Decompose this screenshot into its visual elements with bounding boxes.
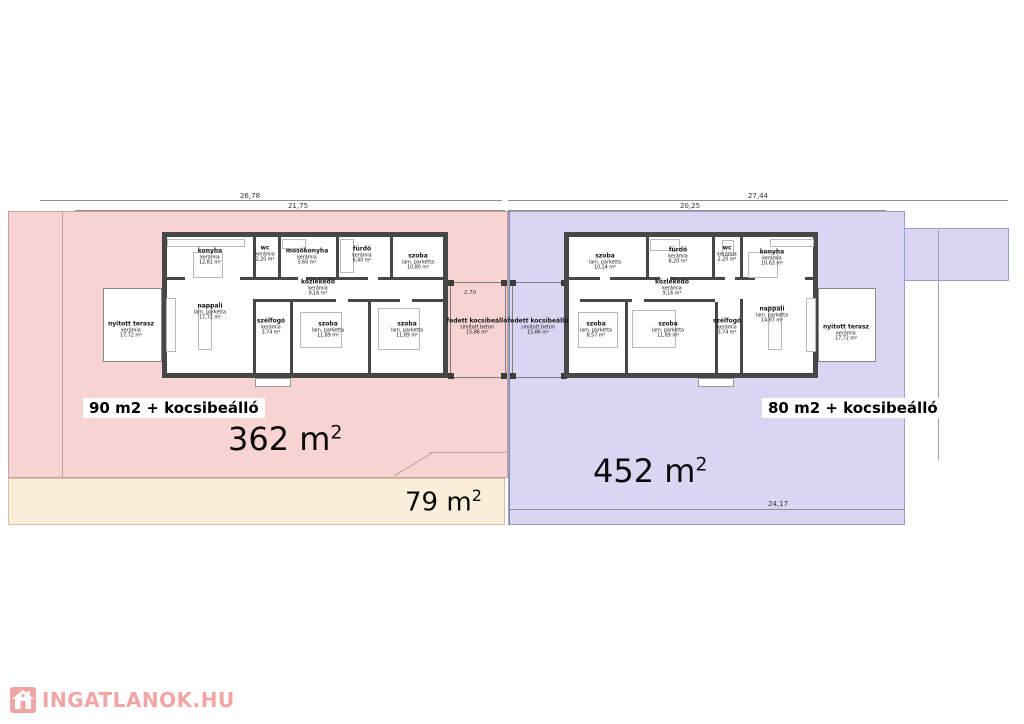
room-area: 10,24 m² [589,265,621,270]
wall [390,237,393,277]
room-area: 2,20 m² [717,257,736,262]
room-area: 17,72 m² [194,315,226,320]
wall [740,299,743,375]
room-name: fürdő [352,246,371,253]
room-area: 2,20 m² [255,257,274,262]
wall [378,277,443,280]
site-plan: 26,78 21,75 27,44 20,25 24,17 4,20 7,20 … [0,0,1024,724]
room-label-szoba: szoba lam. parketta 11,89 m² [391,321,423,338]
room-area: 11,89 m² [312,333,344,338]
room-name: szoba [580,321,612,328]
plot-boundary-line [509,211,510,525]
room-area: 17,72 m² [108,333,154,338]
room-label-kocsibeallo: fedett kocsibeálló simított beton 15,86 … [508,318,569,335]
wall [644,299,715,302]
room-name: nyitott terasz [108,321,154,328]
plot-area-left: 362 m2 [228,420,343,458]
wall [412,299,445,302]
plot-area-strip: 79 m2 [405,486,482,518]
wall [336,237,339,277]
dim-label: 27,44 [748,192,768,200]
area-exponent: 2 [330,421,342,443]
wall [165,277,185,280]
area-exponent: 2 [695,453,707,475]
room-area: 6,40 m² [352,258,371,263]
room-name: szoba [312,321,344,328]
carport-post [510,373,516,379]
room-label-furdo: fürdő kerámia 8,20 m² [668,247,687,264]
room-label-szoba: szoba lam. parketta 10,80 m² [402,253,434,270]
room-area: 5,60 m² [286,260,329,265]
wall [253,299,256,375]
area-unit: m [438,488,472,518]
plot-area-right: 452 m2 [593,452,708,490]
carport-post [501,373,507,379]
watermark-logo: INGATLANOK.HU [6,684,247,716]
area-number: 362 [228,420,289,458]
room-label-nappali: nappali lam. parketta 17,72 m² [194,303,226,320]
carport-post [501,280,507,286]
room-label-szoba: szoba lam. parketta 11,89 m² [312,321,344,338]
carport-post [448,373,454,379]
carport-post [510,280,516,286]
room-label-szelfogo: szélfogó kerámia 3,74 m² [713,318,741,335]
room-area: 3,74 m² [713,330,741,335]
area-number: 79 [405,488,438,518]
room-name: nappali [194,303,226,310]
room-label-wc: wc kerámia 2,20 m² [717,245,736,262]
entrance-step [698,378,734,387]
wall [646,237,649,277]
room-label-konyha: konyha kerámia 12,81 m² [198,248,222,265]
survey-line-chamfer [428,452,508,453]
room-label-terasz: nyitott terasz kerámia 17,72 m² [823,324,869,341]
entrance-step [255,378,291,387]
wall [740,237,743,277]
room-name: konyha [198,248,222,255]
area-number: 452 [593,452,654,490]
room-label-kocsibeallo: fedett kocsibeálló simított beton 15,86 … [447,318,508,335]
room-label-szoba: szoba lam. parketta 8,57 m² [580,321,612,338]
dim-label: 20,25 [680,202,700,210]
wall [610,277,660,280]
wall [712,237,715,277]
room-name: fedett kocsibeálló [447,318,508,325]
room-area: 10,63 m² [760,261,784,266]
room-area: 11,89 m² [391,333,423,338]
room-area: 9,16 m² [655,291,689,296]
wall [567,277,600,280]
wall [290,302,293,375]
room-name: fedett kocsibeálló [508,318,569,325]
survey-line-left [62,211,63,478]
area-exponent: 2 [472,486,482,505]
dim-line [75,210,505,211]
watermark-text: INGATLANOK.HU [42,688,235,712]
room-name: nyitott terasz [823,324,869,331]
furniture-counter [167,239,245,247]
room-name: fürdő [668,247,687,254]
house-size-label-left: 90 m2 + kocsibeálló [83,398,265,418]
wall [240,277,298,280]
room-name: szoba [402,253,434,260]
plot-right-extension [905,228,1009,281]
room-name: szoba [391,321,423,328]
room-name: nappali [756,306,788,313]
room-name: konyha [760,249,784,256]
room-name: szoba [652,321,684,328]
dim-line [40,200,502,201]
area-unit: m [654,452,695,490]
room-area: 15,86 m² [447,330,508,335]
wall [253,299,336,302]
room-label-mosokonyha: mosókonyha kerámia 5,60 m² [286,248,329,265]
wall [278,237,281,277]
room-area: 12,81 m² [198,260,222,265]
dim-label: 24,17 [768,500,788,508]
room-name: közlekedő [655,279,689,286]
room-area: 15,86 m² [508,330,569,335]
room-area: 10,80 m² [402,265,434,270]
room-area: 8,20 m² [668,259,687,264]
room-label-szoba: szoba lam. parketta 10,24 m² [589,253,621,270]
room-area: 14,87 m² [756,318,788,323]
room-label-konyha: konyha kerámia 10,63 m² [760,249,784,266]
wall [805,277,815,280]
room-label-szelfogo: szélfogó kerámia 3,74 m² [257,318,285,335]
furniture-sofa [166,298,176,352]
room-label-terasz: nyitott terasz kerámia 17,72 m² [108,321,154,338]
room-name: szoba [589,253,621,260]
room-area: 9,16 m² [301,291,335,296]
room-label-wc: wc kerámia 2,20 m² [255,245,274,262]
carport-post [448,280,454,286]
room-area: 8,57 m² [580,333,612,338]
room-area: 11,89 m² [652,333,684,338]
furniture-sofa [806,298,816,352]
room-name: közlekedő [301,279,335,286]
room-label-kozlekedo: közlekedő kerámia 9,16 m² [301,279,335,296]
room-area: 3,74 m² [257,330,285,335]
wall [625,302,628,375]
area-unit: m [289,420,330,458]
room-name: szélfogó [257,318,285,325]
wall [715,302,718,375]
room-label-szoba: szoba lam. parketta 11,89 m² [652,321,684,338]
room-label-kozlekedo: közlekedő kerámia 9,16 m² [655,279,689,296]
room-label-furdo: fürdő kerámia 6,40 m² [352,246,371,263]
dim-label: 26,78 [240,192,260,200]
wall [348,299,400,302]
house-size-label-right: 80 m2 + kocsibeálló [762,398,944,418]
room-name: mosókonyha [286,248,329,255]
room-name: wc [717,245,736,252]
room-name: wc [255,245,274,252]
room-label-nappali: nappali lam. parketta 14,87 m² [756,306,788,323]
room-area: 17,72 m² [823,336,869,341]
furniture-counter [770,239,814,247]
dim-line [508,200,1008,201]
dim-line [510,509,905,510]
wall [368,302,371,375]
house-logo-icon [10,687,36,713]
survey-line-right [938,230,939,460]
room-name: szélfogó [713,318,741,325]
dim-line [508,210,886,211]
dim-label: 21,75 [288,202,308,210]
